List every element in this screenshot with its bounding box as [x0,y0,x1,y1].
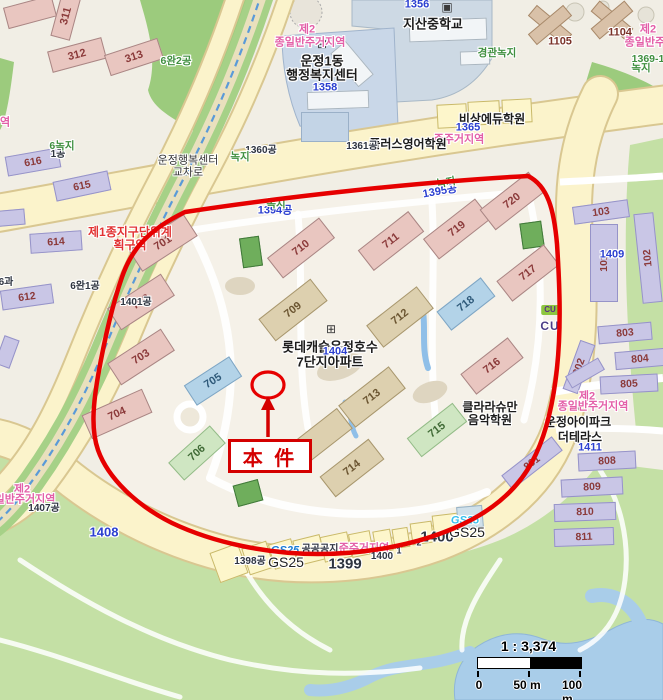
parcel-number-label: 1356 [405,0,429,11]
labels-layer: 제2종일반주거지역준주거지역제2종일반주거지제2종일반주거지역제2일반주거지역역… [0,0,663,700]
parcel-number-label: 1 [396,547,401,556]
parcel-number-label: 공공공지 [302,545,339,555]
scale-bar: 1 : 3,374 0 50 m 100 m [450,638,610,669]
parcel-number-label: 1361공 [346,142,377,152]
scale-bar-black-half [530,658,582,668]
place-name: 클라라슈만 [462,401,517,413]
scale-tick-label: 50 m [513,678,540,692]
scale-ratio: 1 : 3,374 [477,638,580,654]
scale-tick [579,671,581,677]
zoning-label: 역 [0,118,10,129]
subject-callout-box: 本 件 [228,439,312,473]
greenbelt-label: 녹지 [266,199,285,210]
gs25-store-label: GS25 [268,555,304,569]
parcel-number-label: 6완1공 [70,282,100,292]
subject-label: 本 件 [243,442,298,471]
greenbelt-label: 1369-1 [632,54,663,65]
scale-tick-label: 100 m [562,678,594,700]
scale-bar-graphic [477,657,582,669]
parcel-number-label: 1398공 [234,557,265,567]
district-plan-label: 획구역 [113,239,146,251]
district-plan-label: 제1종지구단위계 [88,226,172,238]
scale-tick [528,671,530,677]
greenbelt-label: 경관녹지 [478,48,517,59]
parcel-number-label: 1399 [328,557,361,572]
building-number-label: 1105 [548,37,572,48]
zoning-label: 제2 [299,25,315,36]
parcel-number-label: 1408 [90,526,119,539]
parcel-number-label: 1401공 [120,298,151,308]
parcel-number-label: 1411 [578,443,602,454]
parcel-number-label: 1409 [600,250,624,261]
zoning-label: 종일반주거지역 [275,38,346,49]
place-name: 행정복지센터 [286,69,358,82]
place-name: 플러스영어학원 [369,138,446,150]
place-name: 운정1동 [300,55,343,68]
cu-store-label: CU [540,320,559,332]
greenbelt-label: 6녹지 [49,141,74,152]
zoning-label: 종일반주거지 [625,38,663,49]
place-name: 운정아이파크 [545,416,611,428]
greenbelt-label: 6완2공 [161,56,192,67]
parcel-number-label: 1365 [456,123,480,134]
place-name: 교차로 [173,168,203,179]
building-number-label: 1104 [608,28,632,39]
scale-bar-white-half [478,658,530,668]
place-name: 음악학원 [468,414,512,426]
zoning-label: 종일반주거지역 [558,402,629,413]
parcel-number-label: 6과 [0,278,13,288]
parcel-number-label: 1358 [313,83,337,94]
map-canvas: 3113123136166156146127017027037047057067… [0,0,663,700]
parcel-number-label: 1407공 [28,504,59,514]
greenbelt-label: 녹지 [230,152,249,163]
place-name: 운정행복센터 [158,156,219,167]
parcel-number-label: 1404 [323,347,347,358]
scale-tick [477,671,479,677]
gs25-store-label: GS25 [449,525,485,539]
zoning-label: 제2 [640,25,656,36]
parcel-number-label: 1400 [371,552,393,562]
parcel-number-label: 1360공 [245,146,276,156]
place-name: 지산중학교 [403,18,463,31]
scale-tick-label: 0 [476,678,483,692]
